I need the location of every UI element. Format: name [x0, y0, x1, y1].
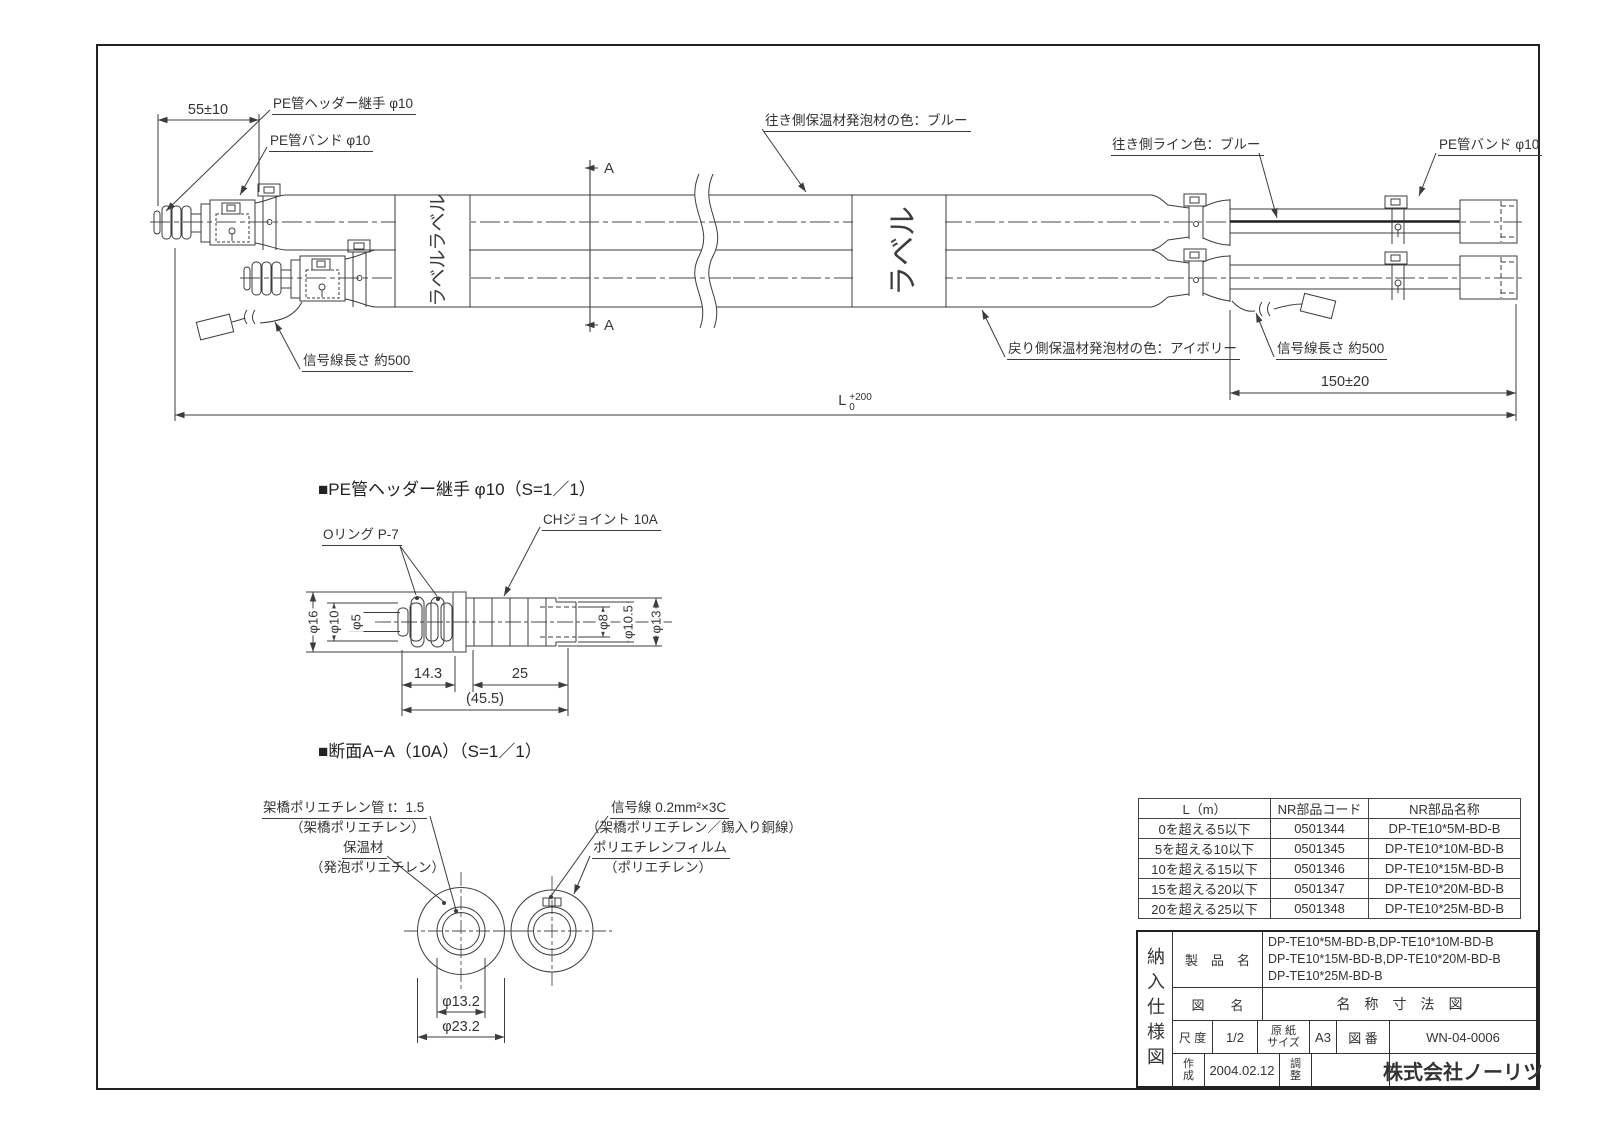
return-foam-color-callout: 戻り側保温材発泡材の色：アイボリー [1007, 341, 1240, 360]
dim-dia13: φ13 [649, 609, 664, 636]
adjust-label: 調 整 [1280, 1054, 1312, 1086]
dim-L-text: L+2000 [838, 393, 872, 413]
supply-line-color-callout: 往き側ライン色：ブルー [1111, 137, 1264, 156]
cell-code: 0501345 [1271, 839, 1369, 859]
table-row: 0を超える5以下 0501344 DP-TE10*5M-BD-B [1139, 819, 1521, 839]
cell-length: 5を超える10以下 [1139, 839, 1271, 859]
drawing-name-label: 図 名 [1173, 988, 1263, 1021]
cell-name: DP-TE10*20M-BD-B [1369, 879, 1521, 899]
cell-name: DP-TE10*5M-BD-B [1369, 819, 1521, 839]
product-name-label: 製 品 名 [1173, 932, 1263, 988]
pipe-label-block-1: ラベル ラベル [395, 193, 470, 307]
cell-length: 10を超える15以下 [1139, 859, 1271, 879]
dim-dia16: φ16 [306, 609, 321, 636]
insulation-callout-sub: （発泡ポリエチレン） [310, 860, 445, 876]
parts-table: L（m） NR部品コード NR部品名称 0を超える5以下 0501344 DP-… [1138, 798, 1521, 919]
film-callout: ポリエチレンフィルム [592, 840, 730, 859]
scale-value: 1/2 [1213, 1021, 1258, 1054]
product-line: DP-TE10*15M-BD-B,DP-TE10*20M-BD-B [1268, 951, 1501, 968]
scale-label: 尺 度 [1173, 1021, 1213, 1054]
break-symbol [676, 174, 740, 328]
dim-dia23-2: φ23.2 [442, 1019, 480, 1036]
dim-55 [158, 114, 259, 206]
dim-L-tolerance: +2000 [849, 393, 872, 413]
film-callout-sub: （ポリエチレン） [604, 860, 712, 876]
col-header-length: L（m） [1139, 799, 1271, 819]
dim-dia5: φ5 [349, 612, 364, 632]
fitting-callout: PE管ヘッダー継手 φ10 [272, 96, 416, 115]
signal-callout: 信号線 0.2mm²×3C [610, 800, 729, 819]
cell-length: 20を超える25以下 [1139, 899, 1271, 919]
fitting-detail-title: ■PE管ヘッダー継手 φ10（S=1／1） [318, 475, 596, 500]
dim-dia13-2: φ13.2 [442, 994, 480, 1011]
dim-dia8: φ8 [596, 612, 611, 632]
parts-table-header-row: L（m） NR部品コード NR部品名称 [1139, 799, 1521, 819]
cell-code: 0501348 [1271, 899, 1369, 919]
signal-length-left-callout: 信号線長さ 約500 [302, 353, 413, 372]
table-row: 20を超える25以下 0501348 DP-TE10*25M-BD-B [1139, 899, 1521, 919]
section-line-AA: A A [585, 160, 614, 334]
drawing-sheet: ラベル ラベル ラベル A A [0, 0, 1600, 1131]
pipe-label-text: ラベル [887, 206, 920, 296]
cross-section-view [387, 816, 612, 1043]
cell-code: 0501347 [1271, 879, 1369, 899]
insulation-callout: 保温材 [342, 840, 387, 859]
created-label: 作 成 [1173, 1054, 1205, 1086]
cell-name: DP-TE10*25M-BD-B [1369, 899, 1521, 919]
dim-150-text: 150±20 [1321, 374, 1369, 391]
supply-foam-color-callout: 往き側保温材発泡材の色：ブルー [764, 113, 971, 132]
col-header-code: NR部品コード [1271, 799, 1369, 819]
pex-pipe-callout-sub: （架橋ポリエチレン） [290, 820, 425, 836]
adjust-value-empty [1312, 1054, 1390, 1086]
company-name: 株式会社ノーリツ [1390, 1054, 1536, 1086]
band-callout-left: PE管バンド φ10 [269, 133, 373, 152]
drawing-no-value: WN-04-0006 [1390, 1021, 1536, 1054]
dim-14-3: 14.3 [414, 666, 442, 683]
paper-size-value: A3 [1310, 1021, 1337, 1054]
cross-section-title: ■断面A−A（10A）（S=1／1） [318, 737, 542, 762]
band-callout-right: PE管バンド φ10 [1438, 137, 1542, 156]
dim-dia10-5: φ10.5 [621, 603, 636, 641]
drawing-name-value: 名 称 寸 法 図 [1263, 988, 1536, 1021]
dim-25: 25 [512, 666, 528, 683]
product-line: DP-TE10*5M-BD-B,DP-TE10*10M-BD-B [1268, 934, 1494, 951]
signal-length-right-callout: 信号線長さ 約500 [1276, 341, 1387, 360]
paper-size-label: 原 紙 サイズ [1258, 1021, 1310, 1054]
cell-code: 0501344 [1271, 819, 1369, 839]
signal-callout-sub: （架橋ポリエチレン／錫入り銅線） [586, 820, 802, 836]
table-row: 10を超える15以下 0501346 DP-TE10*15M-BD-B [1139, 859, 1521, 879]
pex-pipe-callout: 架橋ポリエチレン管 t：1.5 [262, 800, 427, 819]
pipe-label-block-2: ラベル [852, 195, 946, 307]
table-row: 15を超える20以下 0501347 DP-TE10*20M-BD-B [1139, 879, 1521, 899]
dim-dia10: φ10 [327, 609, 342, 636]
pipe-label-text: ラベル [428, 249, 449, 306]
dim-45-5: (45.5) [466, 691, 504, 708]
drawing-no-label: 図 番 [1337, 1021, 1390, 1054]
section-letter: A [604, 160, 614, 177]
section-letter: A [604, 317, 614, 334]
cell-name: DP-TE10*15M-BD-B [1369, 859, 1521, 879]
doc-type-vertical: 納入仕様図 [1138, 932, 1173, 1086]
signal-wire-left [196, 302, 302, 340]
oring-callout: Oリング P-7 [322, 527, 402, 546]
title-block: 納入仕様図 製 品 名 DP-TE10*5M-BD-B,DP-TE10*10M-… [1136, 930, 1538, 1088]
signal-wire-right [1232, 293, 1336, 318]
cell-name: DP-TE10*10M-BD-B [1369, 839, 1521, 859]
cell-length: 0を超える5以下 [1139, 819, 1271, 839]
cell-code: 0501346 [1271, 859, 1369, 879]
dim-L-letter: L [838, 393, 846, 409]
product-line: DP-TE10*25M-BD-B [1268, 968, 1383, 985]
created-value: 2004.02.12 [1205, 1054, 1280, 1086]
table-row: 5を超える10以下 0501345 DP-TE10*10M-BD-B [1139, 839, 1521, 859]
pipe-label-text: ラベル [428, 193, 449, 250]
product-name-value: DP-TE10*5M-BD-B,DP-TE10*10M-BD-B DP-TE10… [1263, 932, 1536, 988]
ch-joint-callout: CHジョイント 10A [542, 512, 661, 531]
col-header-name: NR部品名称 [1369, 799, 1521, 819]
dim-55-text: 55±10 [188, 102, 228, 119]
cell-length: 15を超える20以下 [1139, 879, 1271, 899]
